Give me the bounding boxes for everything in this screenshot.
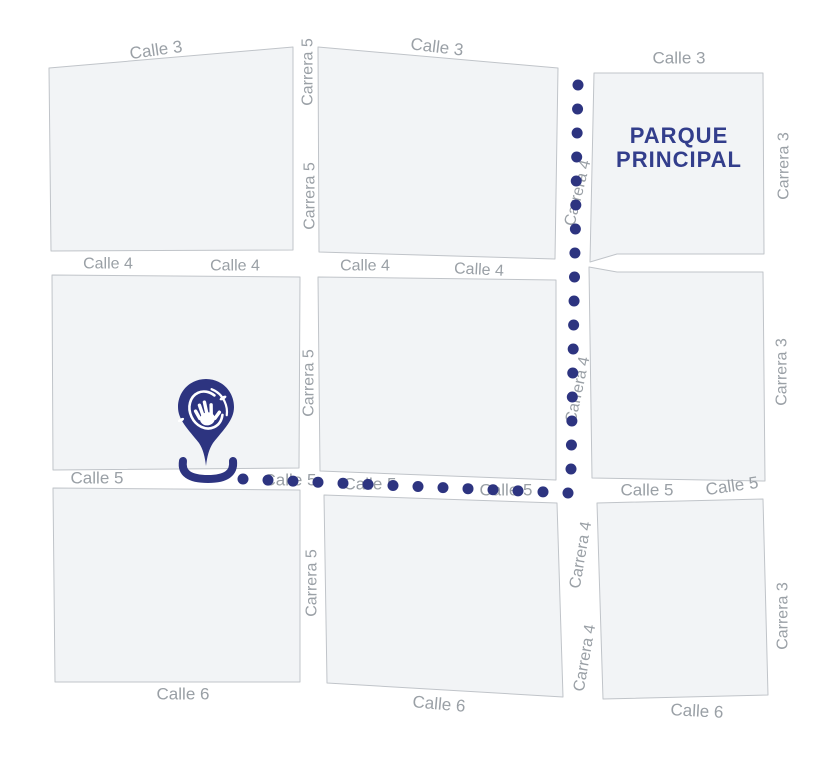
route-dot [570, 224, 581, 235]
route-dot [463, 483, 474, 494]
park-label-line2: PRINCIPAL [579, 148, 779, 172]
street-label-calle-4: Calle 4 [83, 256, 133, 273]
route-dot [566, 416, 577, 427]
park-label: PARQUE PRINCIPAL [579, 124, 779, 172]
street-label-carrera-5: Carrera 5 [300, 38, 317, 106]
route-dot [569, 296, 580, 307]
street-label-calle-5: Calle 5 [621, 481, 674, 500]
street-label-carrera-3: Carrera 3 [774, 338, 791, 406]
street-label-calle-6: Calle 6 [412, 692, 466, 716]
route-dot [413, 481, 424, 492]
route-dot [570, 200, 581, 211]
block-south [324, 495, 563, 697]
street-label-calle-4: Calle 4 [210, 258, 260, 275]
route-dot [571, 176, 582, 187]
route-dot [263, 475, 274, 486]
route-dot [566, 440, 577, 451]
route-dot [573, 80, 584, 91]
route-dot [238, 474, 249, 485]
route-dot [388, 480, 399, 491]
route-dot [338, 478, 349, 489]
route-dot [567, 392, 578, 403]
street-label-calle-6: Calle 6 [157, 685, 210, 704]
city-map: Calle 3Calle 3Calle 3Carrera 5Carrera 5C… [0, 0, 838, 759]
route-dot [569, 272, 580, 283]
street-label-calle-5: Calle 5 [480, 481, 533, 500]
block-northwest [49, 47, 293, 251]
street-label-carrera-5: Carrera 5 [302, 162, 319, 230]
map-canvas: Calle 3Calle 3Calle 3Carrera 5Carrera 5C… [0, 0, 838, 759]
street-label-calle-4: Calle 4 [454, 260, 505, 280]
route-dot [568, 320, 579, 331]
street-label-carrera-4: Carrera 4 [563, 355, 594, 425]
block-east [589, 267, 765, 481]
street-label-carrera-4: Carrera 4 [571, 623, 599, 693]
street-label-calle-5: Calle 5 [71, 469, 124, 488]
park-label-line1: PARQUE [579, 124, 779, 148]
street-label-carrera-3: Carrera 3 [775, 582, 792, 650]
route-dot [513, 485, 524, 496]
block-north [318, 47, 558, 259]
route-dot [567, 368, 578, 379]
street-label-carrera-5: Carrera 5 [304, 549, 321, 617]
block-west [52, 275, 300, 470]
route-dot [313, 477, 324, 488]
block-center [318, 277, 556, 480]
block-southwest [53, 488, 300, 682]
route-dot [538, 486, 549, 497]
route-dot [438, 482, 449, 493]
street-label-calle-3: Calle 3 [653, 49, 706, 68]
route-dot [569, 248, 580, 259]
street-label-carrera-4: Carrera 4 [567, 520, 595, 590]
route-dot [563, 488, 574, 499]
route-dot [288, 476, 299, 487]
route-dot [572, 104, 583, 115]
route-dot [568, 344, 579, 355]
street-label-calle-4: Calle 4 [340, 258, 390, 275]
route-dot [363, 479, 374, 490]
street-label-carrera-5: Carrera 5 [301, 349, 318, 417]
street-label-calle-6: Calle 6 [670, 700, 724, 722]
route-dot [566, 464, 577, 475]
block-southeast [597, 499, 768, 699]
route-dot [488, 484, 499, 495]
